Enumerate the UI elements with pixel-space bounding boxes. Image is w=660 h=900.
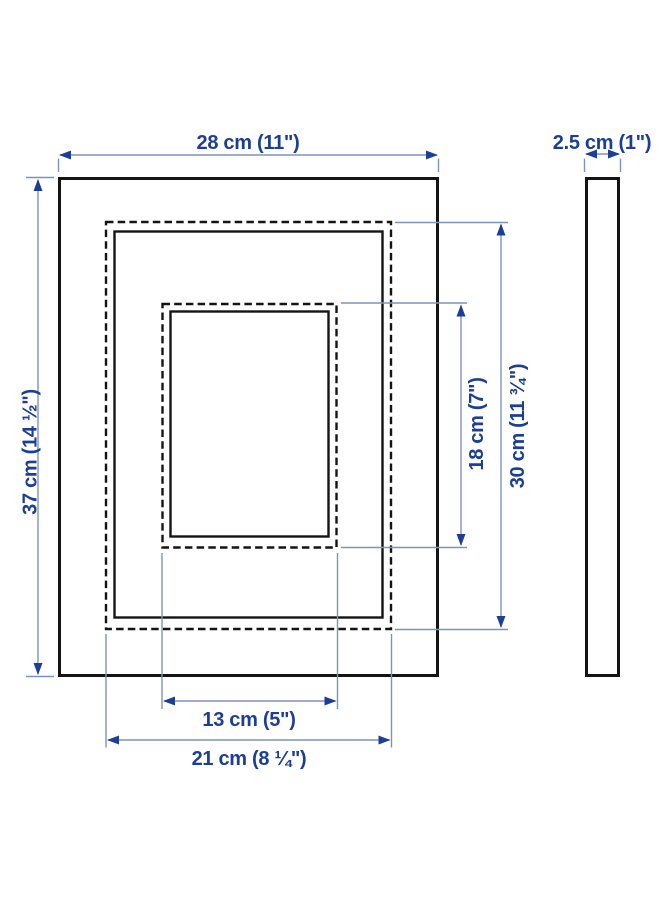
outer-width-label: 28 cm (11") [197, 132, 300, 154]
frame-dimension-diagram: 28 cm (11") 2.5 cm (1") 37 cm (14 ½") 30… [0, 0, 660, 900]
depth-label: 2.5 cm (1") [553, 132, 651, 154]
photo-opening-solid-outline [171, 312, 329, 537]
dimension-mat-width: 21 cm (8 ¼") [106, 634, 392, 770]
opening-width-label: 13 cm (5") [202, 709, 295, 731]
opening-height-label: 18 cm (7") [466, 377, 488, 470]
extension-lines [341, 303, 467, 548]
diagram-canvas: 28 cm (11") 2.5 cm (1") 37 cm (14 ½") 30… [0, 0, 660, 900]
dimension-mat-height: 30 cm (11 ¾") [395, 223, 529, 630]
mat-outer-dashed-outline [106, 222, 391, 629]
outer-height-label: 37 cm (14 ½") [20, 389, 42, 515]
dimension-outer-height: 37 cm (14 ½") [20, 178, 55, 677]
frame-outer-outline [60, 179, 438, 676]
extension-ticks [59, 159, 439, 173]
extension-ticks [585, 159, 621, 173]
side-view [587, 179, 619, 676]
side-profile-outline [587, 179, 619, 676]
dimension-opening-width: 13 cm (5") [162, 553, 338, 731]
mat-outer-solid-outline [115, 232, 383, 618]
dimension-outer-width: 28 cm (11") [59, 132, 439, 172]
extension-lines [395, 223, 508, 630]
front-view [60, 179, 438, 676]
dimension-opening-height: 18 cm (7") [341, 303, 488, 548]
photo-opening-dashed-outline [163, 304, 337, 548]
mat-width-label: 21 cm (8 ¼") [192, 748, 307, 770]
dimension-depth: 2.5 cm (1") [553, 132, 651, 172]
mat-height-label: 30 cm (11 ¾") [507, 364, 529, 489]
extension-lines [162, 553, 338, 709]
